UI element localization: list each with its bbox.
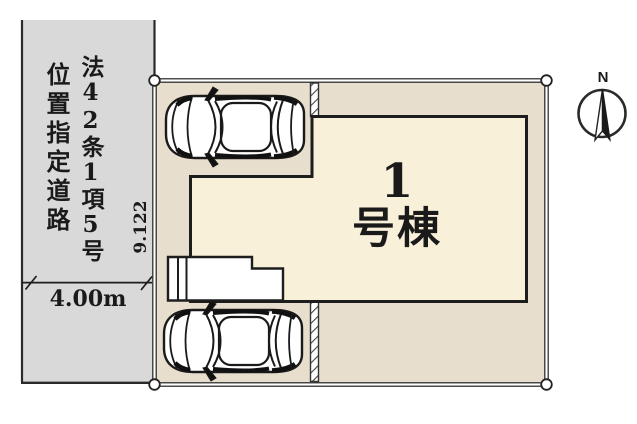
car-icon-top xyxy=(166,87,304,167)
partition-hatch-top xyxy=(311,83,319,117)
compass xyxy=(579,89,626,140)
building-suffix: 号棟 xyxy=(316,206,478,252)
road-width-dimension-label: 4.00m xyxy=(38,286,138,312)
boundary-marker-ne xyxy=(541,75,552,86)
boundary-marker-sw xyxy=(149,379,160,390)
partition-hatch-bottom xyxy=(311,302,319,382)
building-label: 1 号棟 xyxy=(316,158,478,252)
boundary-marker-se xyxy=(541,379,552,390)
boundary-marker-nw xyxy=(149,75,160,86)
road-name-label-left-column: 位置指定道路 xyxy=(44,62,68,236)
road-name-label-right-column: 法42条1項5号 xyxy=(79,55,102,263)
site-boundary-dimension-label: 9.122 xyxy=(132,192,150,262)
car-icon-bottom xyxy=(164,301,302,381)
site-plan-diagram: 法42条1項5号 位置指定道路 9.122 4.00m 1 号棟 N xyxy=(0,0,637,424)
compass-north-label: N xyxy=(593,69,613,86)
building-number: 1 xyxy=(316,158,478,206)
